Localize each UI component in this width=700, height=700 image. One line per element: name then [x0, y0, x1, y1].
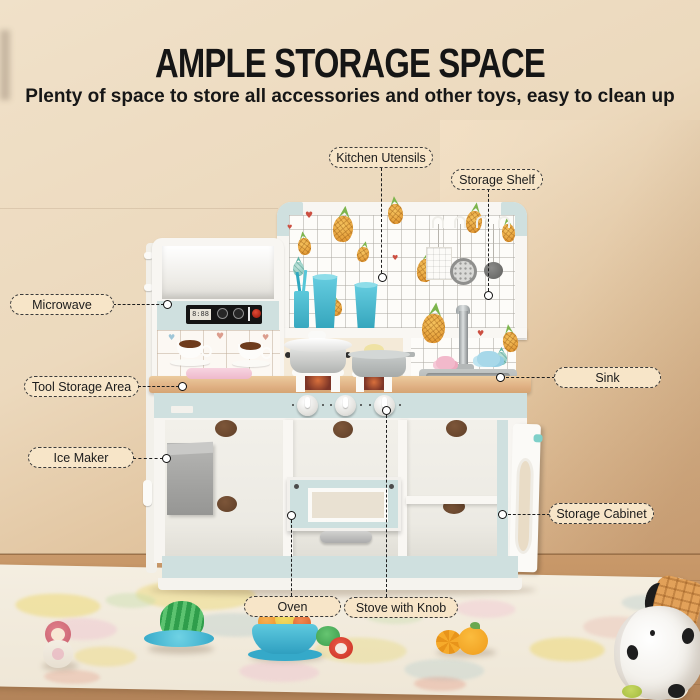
stove-knob: [297, 395, 318, 416]
burner-fire: [364, 377, 384, 390]
skimmer-utensil: [450, 258, 477, 285]
leader-dot-oven: [287, 511, 296, 520]
knob-mark: [322, 404, 324, 406]
knob-mark: [369, 404, 371, 406]
toy-bowl: [252, 624, 318, 654]
microwave-display: 8:88: [190, 309, 211, 320]
cup-rim: [355, 282, 377, 288]
callout-sink: Sink: [554, 367, 661, 388]
storage-cabinet-door: [509, 424, 541, 573]
utensil-hook: [476, 216, 488, 228]
heart-sticker-icon: ♥: [262, 334, 269, 342]
rug-spot: [414, 676, 466, 691]
microwave-dial: [233, 308, 244, 319]
saucer: [170, 359, 210, 366]
leader-dot-microwave: [163, 300, 172, 309]
hanging-basket: [426, 247, 452, 280]
leader-line-storage-shelf: [488, 189, 489, 291]
coffee: [179, 340, 201, 348]
leader-dot-ice-maker: [162, 454, 171, 463]
leader-line-stove-with-knob: [386, 415, 387, 597]
pumpkin-spot: [650, 630, 655, 636]
leader-line-ice-maker: [133, 458, 163, 459]
pink-tray: [186, 368, 252, 379]
ladle-utensil: [484, 262, 503, 279]
pan-rim: [348, 350, 410, 359]
page-title: AMPLE STORAGE SPACE: [70, 40, 630, 87]
oven-screw: [294, 484, 299, 489]
doll-pattern: [52, 648, 64, 660]
rug-spot: [455, 599, 515, 618]
sink-knob-blue: [477, 351, 500, 367]
oven-door-window: [308, 488, 388, 522]
callout-kitchen-utensils: Kitchen Utensils: [329, 147, 433, 168]
microwave-power-button: [252, 309, 261, 318]
leader-line-kitchen-utensils: [381, 168, 382, 273]
leader-dot-sink: [496, 373, 505, 382]
burner-leg: [296, 375, 305, 392]
knob-mark: [330, 404, 332, 406]
panel-divider: [248, 307, 250, 321]
page-subtitle: Plenty of space to store all accessories…: [0, 86, 700, 108]
utensil-cup: [294, 291, 309, 328]
microwave-open-compartment: [162, 246, 274, 299]
heart-sticker-icon: ♥: [287, 225, 292, 231]
leader-line-microwave: [113, 304, 164, 305]
rug-spot: [239, 661, 319, 683]
cutout-hole: [333, 421, 353, 438]
rug-spot: [15, 593, 100, 619]
hanging-wire: [493, 224, 494, 264]
leader-dot-tool-storage-area: [178, 382, 187, 391]
knob-mark: [360, 404, 362, 406]
coffee-cup-decal: [170, 340, 210, 368]
leader-line-sink: [506, 377, 555, 378]
rug-spot: [529, 637, 604, 662]
cutout-hole: [215, 420, 237, 437]
heart-sticker-icon: ♥: [168, 334, 175, 342]
oven-door-handle: [320, 531, 372, 543]
tomato-cut-face: [335, 643, 347, 654]
sink-knob-pink: [436, 356, 455, 370]
burner-leg: [356, 377, 364, 392]
leader-dot-stove-with-knob: [382, 406, 391, 415]
saucer: [232, 360, 270, 367]
coffee-cup-decal: [232, 342, 270, 369]
microwave-dial: [217, 308, 228, 319]
callout-storage-shelf: Storage Shelf: [451, 169, 543, 190]
coffee: [240, 342, 261, 350]
callout-tool-storage-area: Tool Storage Area: [24, 376, 139, 397]
rug-spot: [105, 593, 155, 609]
product-infographic: ♥ ♥ ♥ 8:88 ♥ ♥ ♥: [0, 0, 700, 700]
stove-knob: [335, 395, 356, 416]
cup-handle: [201, 345, 212, 357]
burner-fire: [305, 374, 331, 390]
leader-dot-storage-cabinet: [498, 510, 507, 519]
heart-sticker-icon: ♥: [216, 333, 224, 342]
toy-orange: [458, 627, 488, 655]
knob-mark: [292, 404, 294, 406]
toy-green-disc: [622, 685, 642, 698]
callout-storage-cabinet: Storage Cabinet: [549, 503, 654, 524]
hanging-wire: [438, 224, 439, 248]
oven-door: [287, 477, 401, 531]
burner-leg: [384, 377, 392, 392]
faucet-stem: [459, 311, 468, 369]
utensil-hook: [498, 216, 510, 228]
base-board: [158, 578, 522, 590]
hanging-wire: [460, 224, 461, 260]
leader-line-tool-storage-area: [138, 386, 179, 387]
cutout-hole: [446, 420, 467, 437]
door-window: [515, 458, 535, 554]
wall-seam: [0, 208, 278, 209]
heart-sticker-icon: ♥: [305, 212, 313, 221]
knob-mark: [399, 404, 401, 406]
cup-handle: [261, 347, 272, 359]
cup-rim: [313, 274, 337, 280]
cabinet-inner-wall: [497, 420, 508, 558]
toy-plate: [144, 630, 214, 647]
leader-dot-kitchen-utensils: [378, 273, 387, 282]
leader-line-oven: [291, 520, 292, 596]
brand-label: [171, 406, 193, 413]
oven-screw: [389, 484, 394, 489]
rug-spot: [44, 669, 100, 684]
pot-lid: [284, 338, 352, 352]
pumpkin-spot: [668, 684, 685, 698]
kick-base: [162, 556, 518, 580]
leader-line-storage-cabinet: [508, 514, 550, 515]
side-handle: [143, 480, 152, 506]
callout-ice-maker: Ice Maker: [28, 447, 134, 468]
door-handle: [533, 434, 542, 442]
callout-oven: Oven: [244, 596, 341, 617]
callout-stove-with-knob: Stove with Knob: [344, 597, 458, 618]
leader-dot-storage-shelf: [484, 291, 493, 300]
cabinet-shelf: [406, 496, 506, 504]
heart-sticker-icon: ♥: [392, 255, 398, 262]
orange-leaf: [470, 622, 480, 629]
heart-sticker-icon: ♥: [477, 330, 484, 338]
callout-microwave: Microwave: [10, 294, 114, 315]
rug-spot: [74, 646, 136, 667]
cutout-hole: [217, 496, 237, 512]
burner-leg: [331, 375, 340, 392]
